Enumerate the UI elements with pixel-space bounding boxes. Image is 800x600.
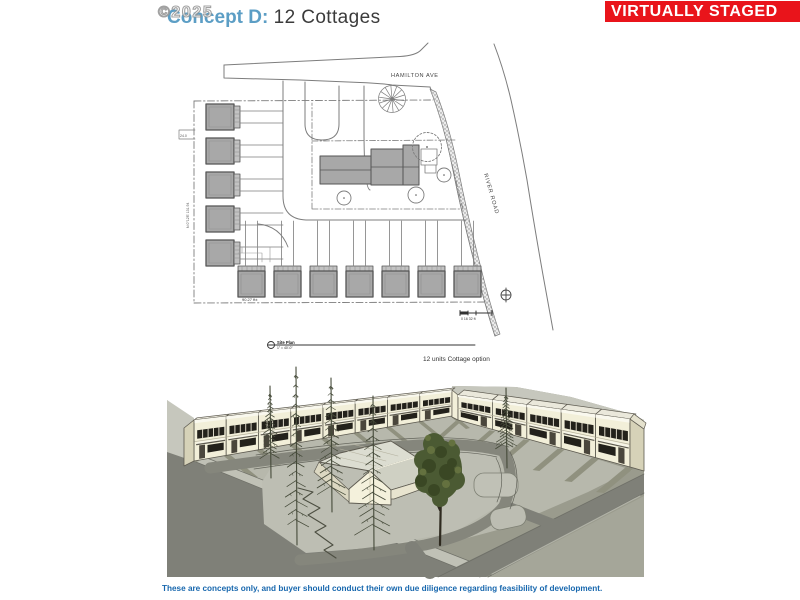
svg-text:90.27 ft±: 90.27 ft± xyxy=(242,297,258,302)
svg-text:Site Plan: Site Plan xyxy=(277,340,295,345)
svg-text:HAMILTON AVE: HAMILTON AVE xyxy=(391,73,439,79)
svg-text:N 0°12'E 131.94: N 0°12'E 131.94 xyxy=(186,203,190,228)
svg-text:12 units Cottage option: 12 units Cottage option xyxy=(423,356,490,363)
svg-text:RIVER ROAD: RIVER ROAD xyxy=(482,173,499,215)
svg-text:1" = 40'-0": 1" = 40'-0" xyxy=(277,346,293,350)
svg-text:24.0: 24.0 xyxy=(180,134,187,138)
svg-text:0 16 32 ft: 0 16 32 ft xyxy=(461,317,476,321)
